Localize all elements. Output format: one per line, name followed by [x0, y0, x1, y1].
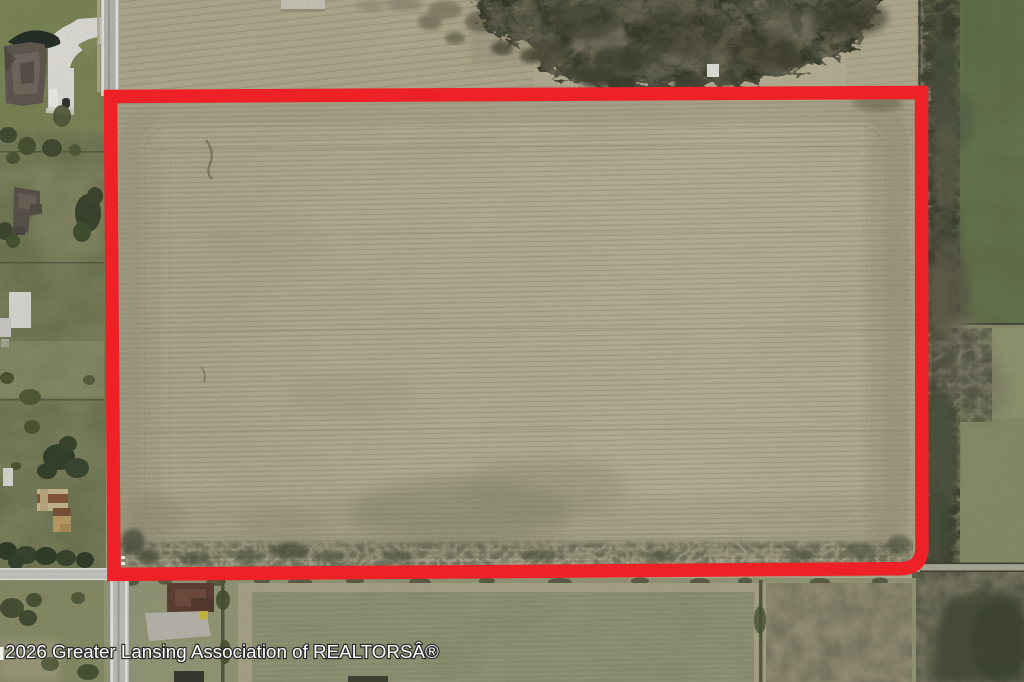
- svg-text:2026 Greater Lansing Associati: 2026 Greater Lansing Association of REAL…: [5, 641, 439, 662]
